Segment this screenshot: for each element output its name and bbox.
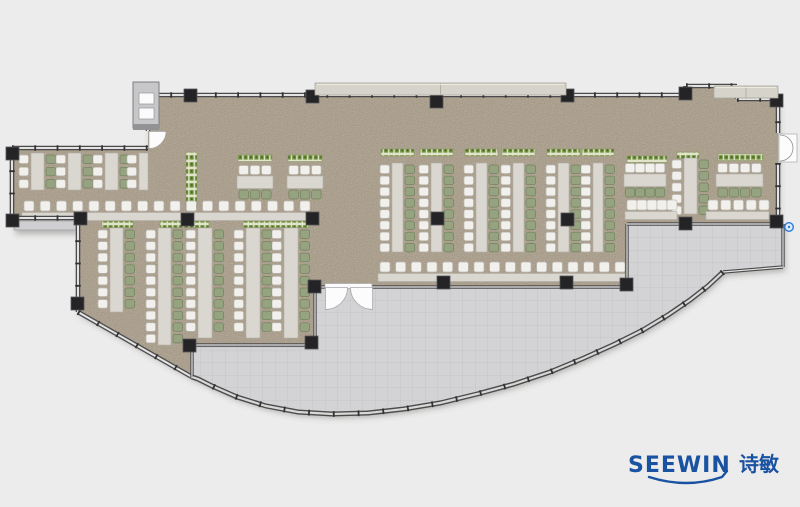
chair-green <box>489 232 499 241</box>
chair-white <box>93 167 103 176</box>
chair-green <box>300 190 310 199</box>
chair-green <box>173 334 183 343</box>
chair-white <box>186 242 196 251</box>
elevator-shaft <box>133 82 159 128</box>
chair-green <box>699 160 709 169</box>
chair-white <box>186 300 196 309</box>
chair-white <box>655 164 665 173</box>
chair-white <box>98 242 108 251</box>
chair-green <box>605 187 615 196</box>
chair-green <box>571 165 581 174</box>
chair-white <box>146 323 156 332</box>
chair-white <box>98 276 108 285</box>
chair-green <box>173 242 183 251</box>
chair-green <box>46 180 56 189</box>
chair-white <box>584 262 594 272</box>
chair-green <box>173 311 183 320</box>
chair-white <box>501 199 511 208</box>
chair-white <box>234 300 244 309</box>
chair-white <box>186 265 196 274</box>
chair-green <box>250 190 260 199</box>
planter-strip <box>243 221 309 228</box>
chair-white <box>464 243 474 252</box>
chair-white <box>490 262 500 272</box>
chair-white <box>234 311 244 320</box>
chair-green <box>405 165 415 174</box>
chair-white <box>752 164 762 173</box>
chair-white <box>272 323 282 332</box>
chair-white <box>234 288 244 297</box>
chair-white <box>146 265 156 274</box>
chair-green <box>214 300 224 309</box>
chair-green <box>526 232 536 241</box>
chair-white <box>98 230 108 239</box>
chair-green <box>635 188 645 197</box>
chair-green <box>125 300 135 309</box>
chair-white <box>380 210 390 219</box>
wall-sill <box>133 124 159 130</box>
chair-white <box>581 199 591 208</box>
chair-white <box>268 201 278 211</box>
chair-white <box>56 155 66 164</box>
chair-white <box>635 164 645 173</box>
chair-white <box>546 165 556 174</box>
structural-column <box>431 212 444 225</box>
floorplan-canvas: SEEWIN 诗敏 <box>0 0 800 507</box>
chair-white <box>672 160 682 169</box>
brand-logo: SEEWIN 诗敏 <box>628 452 780 483</box>
chair-white <box>98 288 108 297</box>
chair-white <box>234 242 244 251</box>
chair-white <box>380 187 390 196</box>
chair-white <box>464 199 474 208</box>
desk-table <box>684 158 697 214</box>
chair-green <box>300 323 310 332</box>
desk-table <box>158 228 171 345</box>
chair-green <box>489 165 499 174</box>
chair-white <box>464 176 474 185</box>
chair-white <box>272 288 282 297</box>
chair-white <box>718 164 728 173</box>
chair-white <box>419 210 429 219</box>
chair-green <box>571 199 581 208</box>
chair-white <box>154 201 164 211</box>
chair-white <box>272 253 282 262</box>
desk-table <box>431 163 442 252</box>
chair-white <box>464 210 474 219</box>
chair-white <box>419 221 429 230</box>
desk-table <box>198 228 212 338</box>
chair-green <box>125 242 135 251</box>
chair-white <box>40 201 50 211</box>
chair-green <box>289 190 299 199</box>
chair-green <box>214 265 224 274</box>
chair-green <box>405 221 415 230</box>
chair-green <box>262 190 272 199</box>
structural-column <box>71 297 84 310</box>
chair-white <box>234 265 244 274</box>
chair-white <box>581 165 591 174</box>
chair-green <box>405 232 415 241</box>
chair-green <box>489 210 499 219</box>
planter-strip <box>677 152 699 159</box>
chair-white <box>127 167 137 176</box>
chair-white <box>647 200 657 210</box>
chair-white <box>219 201 229 211</box>
chair-white <box>234 323 244 332</box>
chair-white <box>546 176 556 185</box>
chair-green <box>214 253 224 262</box>
chair-white <box>250 166 260 175</box>
chair-white <box>615 262 625 272</box>
chair-white <box>272 311 282 320</box>
chair-green <box>46 167 56 176</box>
chair-green <box>526 176 536 185</box>
chair-white <box>146 242 156 251</box>
chair-green <box>300 253 310 262</box>
chair-white <box>272 276 282 285</box>
structural-column <box>679 87 692 100</box>
chair-white <box>729 164 739 173</box>
chair-green <box>605 165 615 174</box>
chair-white <box>19 180 29 189</box>
chair-green <box>214 230 224 239</box>
chair-green <box>526 165 536 174</box>
chair-green <box>489 187 499 196</box>
chair-green <box>718 188 728 197</box>
chair-white <box>627 200 637 210</box>
chair-white <box>474 262 484 272</box>
chair-green <box>740 188 750 197</box>
chair-white <box>300 201 310 211</box>
planter-strip <box>718 154 763 161</box>
desk-table <box>68 153 81 190</box>
chair-green <box>312 190 322 199</box>
chair-white <box>146 288 156 297</box>
chair-green <box>625 188 635 197</box>
chair-green <box>699 183 709 192</box>
chair-white <box>667 200 677 210</box>
chair-white <box>121 201 131 211</box>
planter-strip <box>465 149 498 156</box>
chair-white <box>581 187 591 196</box>
chair-white <box>56 167 66 176</box>
chair-white <box>56 201 66 211</box>
planter-strip <box>102 221 133 228</box>
chair-green <box>173 265 183 274</box>
chair-white <box>419 176 429 185</box>
planter-strip <box>288 155 322 162</box>
chair-white <box>458 262 468 272</box>
chair-green <box>300 300 310 309</box>
structural-column <box>430 95 443 108</box>
chair-green <box>173 230 183 239</box>
chair-green <box>214 311 224 320</box>
chair-green <box>405 199 415 208</box>
chair-green <box>655 188 665 197</box>
chair-white <box>24 201 34 211</box>
chair-green <box>300 230 310 239</box>
chair-green <box>729 188 739 197</box>
desk-table <box>392 163 403 252</box>
chair-green <box>605 199 615 208</box>
chair-white <box>443 262 453 272</box>
chair-white <box>235 201 245 211</box>
chair-green <box>46 155 56 164</box>
chair-white <box>501 165 511 174</box>
structural-column <box>74 212 87 225</box>
chair-green <box>526 243 536 252</box>
chair-white <box>411 262 421 272</box>
chair-white <box>289 166 299 175</box>
chair-white <box>546 243 556 252</box>
desk-table <box>378 274 625 282</box>
chair-white <box>672 183 682 192</box>
chair-green <box>262 300 272 309</box>
chair-green <box>444 165 454 174</box>
chair-white <box>419 199 429 208</box>
chair-white <box>637 200 647 210</box>
chair-white <box>380 232 390 241</box>
chair-green <box>300 242 310 251</box>
structural-column <box>560 276 573 289</box>
chair-green <box>444 176 454 185</box>
chair-white <box>186 253 196 262</box>
chair-white <box>380 199 390 208</box>
chair-white <box>146 300 156 309</box>
structural-column <box>437 276 450 289</box>
chair-green <box>239 190 249 199</box>
chair-white <box>146 334 156 343</box>
chair-white <box>127 180 137 189</box>
structural-column <box>561 213 574 226</box>
chair-white <box>505 262 515 272</box>
desk-table <box>593 163 603 252</box>
chair-white <box>127 155 137 164</box>
chair-green <box>405 187 415 196</box>
structural-column <box>184 89 197 102</box>
chair-green <box>214 242 224 251</box>
chair-green <box>526 221 536 230</box>
chair-green <box>262 265 272 274</box>
desk-table <box>706 212 769 220</box>
chair-green <box>83 167 93 176</box>
chair-white <box>19 155 29 164</box>
desk-table <box>110 228 123 312</box>
chair-green <box>444 221 454 230</box>
chair-green <box>489 199 499 208</box>
chair-green <box>125 253 135 262</box>
chair-green <box>262 276 272 285</box>
chair-green <box>405 176 415 185</box>
structural-column <box>183 339 196 352</box>
desk-table <box>284 228 298 338</box>
chair-white <box>146 276 156 285</box>
chair-green <box>173 300 183 309</box>
chair-green <box>405 210 415 219</box>
chair-white <box>272 265 282 274</box>
chair-green <box>489 221 499 230</box>
chair-white <box>146 253 156 262</box>
structural-column <box>305 336 318 349</box>
exterior-ledge <box>14 221 76 230</box>
chair-white <box>234 276 244 285</box>
chair-green <box>489 176 499 185</box>
chair-white <box>98 265 108 274</box>
structural-column <box>6 214 19 227</box>
chair-white <box>380 176 390 185</box>
chair-green <box>262 288 272 297</box>
chair-white <box>645 164 655 173</box>
chair-green <box>444 243 454 252</box>
chair-white <box>672 172 682 181</box>
chair-green <box>214 276 224 285</box>
chair-white <box>464 221 474 230</box>
chair-white <box>546 210 556 219</box>
chair-white <box>759 200 769 210</box>
chair-green <box>571 243 581 252</box>
chair-green <box>173 276 183 285</box>
chair-white <box>419 165 429 174</box>
chair-white <box>427 262 437 272</box>
chair-green <box>645 188 655 197</box>
chair-white <box>56 180 66 189</box>
chair-green <box>605 176 615 185</box>
desk-table <box>31 153 44 190</box>
chair-white <box>93 180 103 189</box>
chair-white <box>396 262 406 272</box>
chair-white <box>546 199 556 208</box>
chair-white <box>251 201 261 211</box>
office-floorplan-drawing: SEEWIN 诗敏 <box>0 0 800 507</box>
planter-strip <box>381 149 414 156</box>
chair-white <box>546 187 556 196</box>
chair-green <box>571 176 581 185</box>
chair-green <box>752 188 762 197</box>
planter-strip <box>238 155 272 162</box>
chair-green <box>214 323 224 332</box>
chair-green <box>262 323 272 332</box>
desk-table <box>716 174 763 187</box>
planter-strip <box>627 156 667 163</box>
chair-green <box>125 276 135 285</box>
desk-table <box>625 212 677 220</box>
chair-white <box>98 253 108 262</box>
chair-green <box>605 210 615 219</box>
chair-white <box>419 187 429 196</box>
chair-green <box>405 243 415 252</box>
chair-white <box>552 262 562 272</box>
chair-green <box>571 187 581 196</box>
chair-green <box>300 265 310 274</box>
chair-green <box>526 210 536 219</box>
chair-green <box>605 232 615 241</box>
desk-table <box>139 153 148 190</box>
chair-white <box>464 165 474 174</box>
chair-white <box>501 210 511 219</box>
chair-white <box>262 166 272 175</box>
brand-chinese-name: 诗敏 <box>739 452 780 476</box>
chair-green <box>526 187 536 196</box>
chair-green <box>125 265 135 274</box>
chair-white <box>581 210 591 219</box>
chair-green <box>444 232 454 241</box>
desk-table <box>287 176 323 189</box>
chair-green <box>605 221 615 230</box>
chair-green <box>699 195 709 204</box>
chair-green <box>262 230 272 239</box>
desk-table <box>624 174 666 187</box>
chair-white <box>170 201 180 211</box>
desk-table <box>513 163 524 252</box>
chair-white <box>186 230 196 239</box>
chair-white <box>234 230 244 239</box>
chair-white <box>380 165 390 174</box>
chair-white <box>464 187 474 196</box>
chair-white <box>734 200 744 210</box>
structural-column <box>306 212 319 225</box>
chair-green <box>699 172 709 181</box>
chair-white <box>568 262 578 272</box>
planter-strip <box>186 152 197 208</box>
chair-white <box>521 262 531 272</box>
chair-white <box>625 164 635 173</box>
chair-green <box>444 187 454 196</box>
chair-white <box>581 243 591 252</box>
chair-white <box>186 276 196 285</box>
chair-green <box>214 288 224 297</box>
chair-green <box>83 155 93 164</box>
chair-white <box>581 221 591 230</box>
structural-column <box>181 213 194 226</box>
brand-wordmark: SEEWIN <box>628 453 731 478</box>
desk-table <box>558 163 569 252</box>
chair-white <box>272 230 282 239</box>
chair-white <box>312 166 322 175</box>
chair-green <box>125 288 135 297</box>
chair-white <box>234 253 244 262</box>
chair-green <box>262 242 272 251</box>
chair-white <box>186 311 196 320</box>
chair-white <box>300 166 310 175</box>
chair-white <box>581 232 591 241</box>
structural-column <box>679 217 692 230</box>
planter-strip <box>420 149 453 156</box>
chair-white <box>19 167 29 176</box>
chair-white <box>186 323 196 332</box>
chair-white <box>419 232 429 241</box>
chair-white <box>93 155 103 164</box>
chair-green <box>444 199 454 208</box>
chair-white <box>708 200 718 210</box>
chair-green <box>125 230 135 239</box>
chair-white <box>501 232 511 241</box>
chair-green <box>444 210 454 219</box>
chair-green <box>173 323 183 332</box>
chair-white <box>740 164 750 173</box>
chair-white <box>73 201 83 211</box>
chair-green <box>526 199 536 208</box>
chair-green <box>605 243 615 252</box>
chair-white <box>501 176 511 185</box>
desk-table <box>476 163 487 252</box>
planter-strip <box>502 149 535 156</box>
planter-strip <box>547 149 580 156</box>
chair-white <box>581 176 591 185</box>
chair-green <box>489 243 499 252</box>
chair-white <box>186 288 196 297</box>
chair-white <box>98 300 108 309</box>
